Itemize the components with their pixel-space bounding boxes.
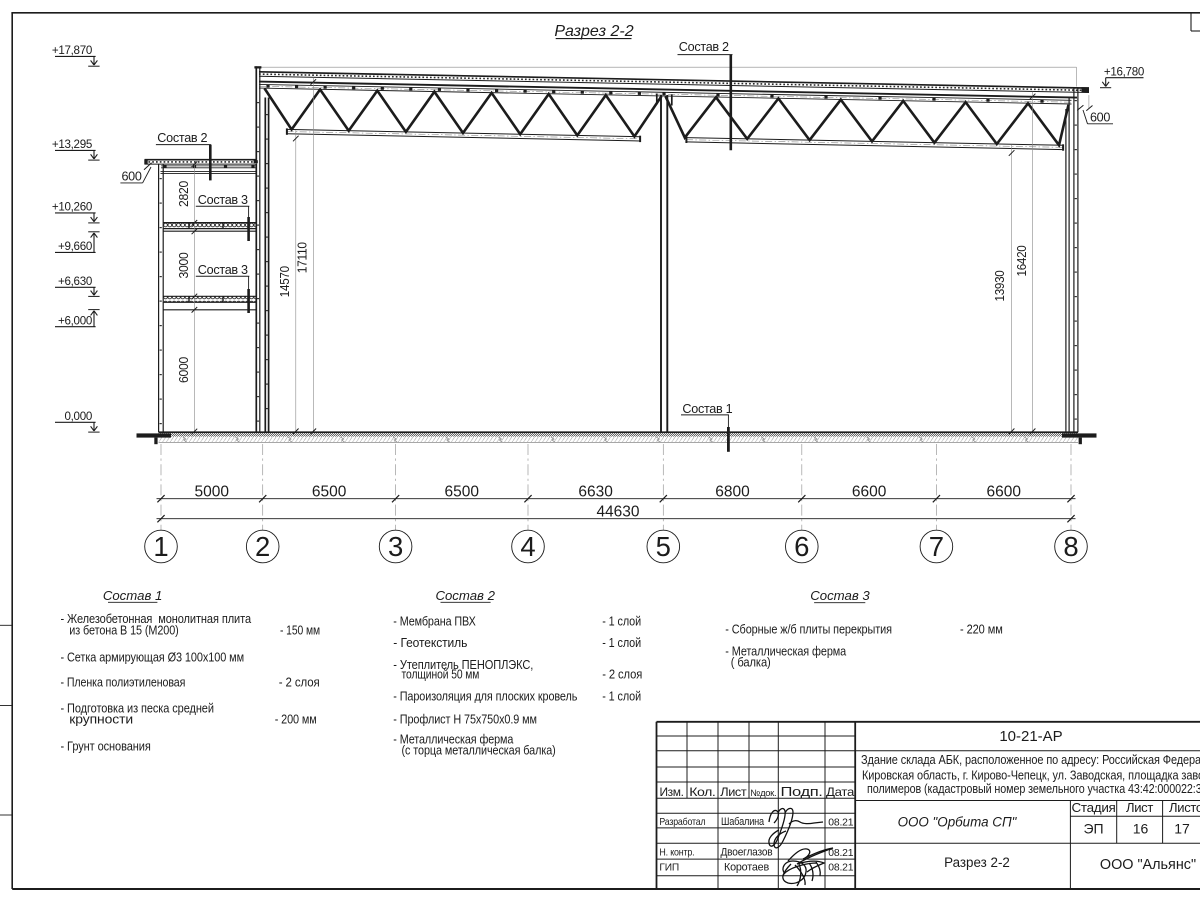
svg-text:Изм.: Изм. <box>660 785 684 799</box>
svg-text:ООО "Орбита СП": ООО "Орбита СП" <box>898 814 1018 829</box>
svg-text:6600: 6600 <box>852 484 887 501</box>
svg-text:(с торца металлическая балка): (с торца металлическая балка) <box>402 744 556 758</box>
svg-text:- 2 слоя: - 2 слоя <box>279 675 320 689</box>
svg-text:крупности: крупности <box>69 713 133 727</box>
svg-text:- Мембрана ПВХ: - Мембрана ПВХ <box>393 614 476 628</box>
svg-text:Лист: Лист <box>720 785 747 799</box>
svg-text:5: 5 <box>656 531 671 562</box>
svg-text:- Геотекстиль: - Геотекстиль <box>393 636 468 650</box>
svg-text:ЭП: ЭП <box>1083 821 1103 837</box>
svg-text:Подп.: Подп. <box>781 784 823 799</box>
svg-text:Состав 3: Состав 3 <box>198 262 248 277</box>
svg-text:ГИП: ГИП <box>659 863 679 874</box>
svg-text:Шабалина: Шабалина <box>721 816 765 828</box>
svg-text:ООО "Альянс": ООО "Альянс" <box>1100 857 1196 873</box>
svg-text:толщиной 50 мм: толщиной 50 мм <box>402 667 480 681</box>
svg-text:Состав 2: Состав 2 <box>157 130 207 145</box>
svg-text:600: 600 <box>121 170 141 184</box>
svg-text:№док.: №док. <box>750 788 776 798</box>
svg-text:6600: 6600 <box>986 484 1021 501</box>
svg-text:Разработал: Разработал <box>659 816 705 828</box>
svg-text:Коротаев: Коротаев <box>724 862 769 874</box>
svg-text:- 150 мм: - 150 мм <box>280 623 320 637</box>
svg-text:- 1 слой: - 1 слой <box>602 690 641 704</box>
svg-text:16420: 16420 <box>1014 245 1029 276</box>
svg-text:+6,000: +6,000 <box>58 315 92 328</box>
svg-text:10-21-АР: 10-21-АР <box>999 728 1062 745</box>
svg-text:Стадия: Стадия <box>1072 800 1116 815</box>
svg-text:- Профлист Н 75х750х0.9 мм: - Профлист Н 75х750х0.9 мм <box>393 713 537 727</box>
svg-text:полимеров (кадастровый номер з: полимеров (кадастровый номер земельного … <box>867 782 1200 796</box>
svg-text:- 200 мм: - 200 мм <box>275 713 317 727</box>
svg-text:( балка): ( балка) <box>731 656 771 670</box>
svg-text:2820: 2820 <box>176 181 191 207</box>
svg-text:Кол.: Кол. <box>689 785 715 799</box>
svg-text:Состав 2: Состав 2 <box>435 588 495 603</box>
svg-text:08.21: 08.21 <box>828 848 853 859</box>
svg-text:7: 7 <box>929 531 944 562</box>
svg-text:Состав 1: Состав 1 <box>103 588 163 603</box>
svg-text:8: 8 <box>1063 531 1078 562</box>
svg-text:08.21: 08.21 <box>828 863 853 874</box>
svg-text:Состав 1: Состав 1 <box>682 401 732 416</box>
svg-text:6630: 6630 <box>578 484 613 501</box>
svg-text:Листов: Листов <box>1169 800 1200 815</box>
svg-text:- Сетка армирующая Ø3 100х100: - Сетка армирующая Ø3 100х100 мм <box>61 651 245 665</box>
svg-text:4: 4 <box>520 531 535 562</box>
svg-text:3000: 3000 <box>176 252 191 278</box>
svg-text:44630: 44630 <box>596 504 639 521</box>
svg-text:+6,630: +6,630 <box>58 275 92 288</box>
svg-text:1: 1 <box>153 531 168 562</box>
svg-text:Состав 3: Состав 3 <box>810 588 870 603</box>
svg-text:- 1 слой: - 1 слой <box>602 614 641 628</box>
svg-text:- 220 мм: - 220 мм <box>960 623 1003 637</box>
svg-text:6500: 6500 <box>445 484 480 501</box>
svg-text:Разрез 2-2: Разрез 2-2 <box>944 855 1010 870</box>
svg-text:из бетона В 15 (М200): из бетона В 15 (М200) <box>69 623 178 637</box>
svg-text:0,000: 0,000 <box>64 410 92 423</box>
svg-text:Здание склада АБК, расположенн: Здание склада АБК, расположенное по адре… <box>861 753 1200 767</box>
svg-text:17110: 17110 <box>295 242 310 273</box>
svg-text:+16,780: +16,780 <box>1104 65 1144 78</box>
svg-text:08.21: 08.21 <box>828 817 853 828</box>
svg-text:6000: 6000 <box>176 357 191 383</box>
svg-text:Двоеглазов: Двоеглазов <box>721 847 773 859</box>
svg-text:Состав 2: Состав 2 <box>679 39 729 54</box>
svg-text:- 1 слой: - 1 слой <box>602 636 641 650</box>
svg-text:Кировская область, г. Кирово-Ч: Кировская область, г. Кирово-Чепецк, ул.… <box>862 769 1200 783</box>
svg-text:6500: 6500 <box>312 484 347 501</box>
svg-text:17: 17 <box>1174 821 1190 837</box>
svg-text:Н. контр.: Н. контр. <box>659 848 694 859</box>
svg-text:600: 600 <box>1090 111 1110 125</box>
svg-text:Лист: Лист <box>1126 800 1153 815</box>
svg-text:+17,870: +17,870 <box>52 44 92 57</box>
svg-text:- 2 слоя: - 2 слоя <box>602 667 642 681</box>
svg-text:14570: 14570 <box>277 266 292 297</box>
svg-text:13930: 13930 <box>992 270 1007 301</box>
svg-text:- Пароизоляция для плоских кро: - Пароизоляция для плоских кровель <box>393 690 577 704</box>
svg-text:+9,660: +9,660 <box>58 240 92 253</box>
svg-text:2: 2 <box>255 531 270 562</box>
svg-text:+10,260: +10,260 <box>52 201 92 214</box>
svg-text:Разрез 2-2: Разрез 2-2 <box>554 23 633 40</box>
svg-text:- Грунт основания: - Грунт основания <box>61 739 151 753</box>
svg-text:3: 3 <box>388 531 403 562</box>
svg-text:Дата: Дата <box>826 785 854 799</box>
svg-text:- Пленка полиэтиленовая: - Пленка полиэтиленовая <box>61 675 186 689</box>
svg-text:5000: 5000 <box>195 484 230 501</box>
svg-text:- Сборные ж/б плиты перекрытия: - Сборные ж/б плиты перекрытия <box>725 623 892 637</box>
svg-text:16: 16 <box>1133 821 1149 837</box>
svg-text:Состав 3: Состав 3 <box>198 192 248 207</box>
svg-text:6: 6 <box>794 531 809 562</box>
svg-text:6800: 6800 <box>715 484 750 501</box>
svg-text:+13,295: +13,295 <box>52 138 92 151</box>
